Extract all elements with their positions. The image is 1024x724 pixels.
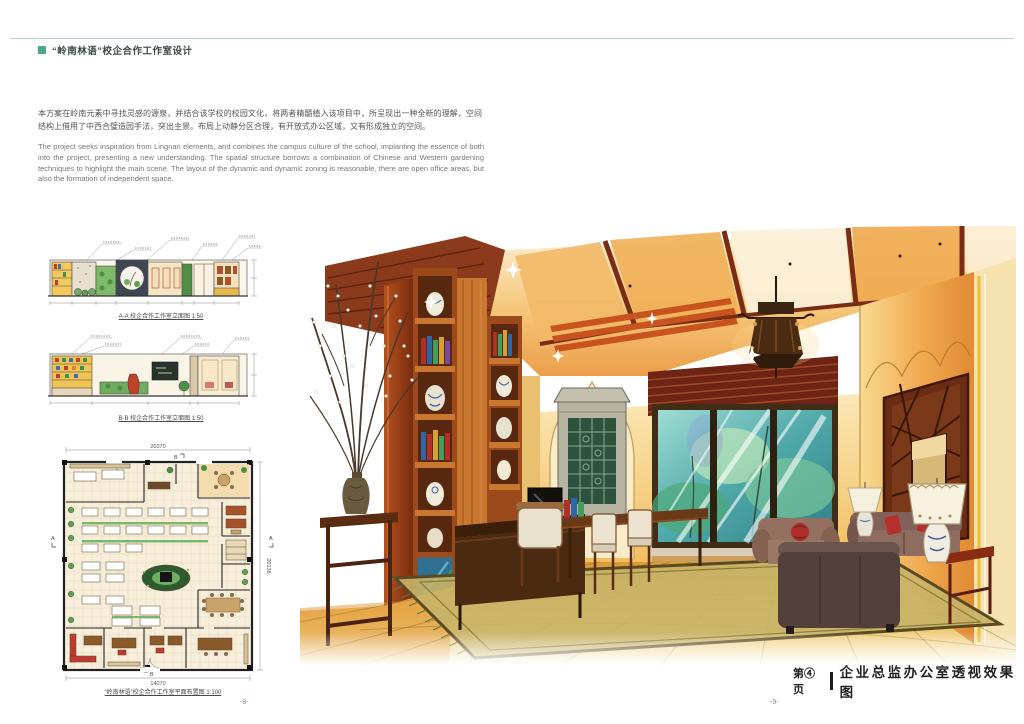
perspective-rendering — [300, 226, 1016, 666]
annotation-leaders — [72, 336, 250, 354]
floor-plan-figure: 20370 20138 14070 B B A A — [48, 440, 278, 696]
plan-dim-right: 20138 — [265, 558, 271, 573]
annotation-leaders — [87, 236, 262, 260]
rendering-page-label: 第④页 — [793, 665, 825, 697]
elevation-b-figure: B-B 校企合作工作室立面图 1:50 — [42, 330, 280, 422]
elevation-b-drawing — [42, 330, 280, 412]
plan-dim-bottom: 14070 — [150, 681, 165, 686]
plan-dim-top: 20370 — [150, 444, 165, 450]
rendering-title: 企业总监办公室透视效果图 — [840, 661, 1024, 701]
intro-paragraph-en: The project seeks inspiration from Lingn… — [38, 142, 484, 185]
back-sofa — [778, 542, 900, 634]
rendering-caption-divider — [830, 672, 833, 690]
elevation-b-body — [48, 354, 248, 396]
plan-marker-a-left: A — [51, 536, 55, 542]
display-shelf — [487, 316, 522, 556]
plan-marker-b-bottom: B — [150, 672, 154, 678]
elevation-a-body — [48, 260, 248, 296]
elevation-a-caption: A-A 校企合作工作室立面图 1:50 — [119, 311, 204, 320]
floor-plan-caption: “岭南林语”校企合作工作室平面布置图 1:100 — [105, 687, 222, 696]
plan-marker-b-top: B — [174, 455, 178, 461]
header-bullet-square — [38, 46, 46, 54]
page-number-left: -8- — [240, 699, 249, 706]
plan-marker-a-right: A — [269, 536, 273, 542]
top-rule-line — [10, 38, 1014, 39]
elevation-a-drawing — [42, 232, 280, 310]
rendering-caption: 第④页 企业总监办公室透视效果图 — [793, 661, 1024, 701]
floor-plan-drawing: 20370 20138 14070 B B A A — [48, 440, 278, 686]
elevation-b-caption: B-B 校企合作工作室立面图 1:50 — [118, 413, 203, 422]
header-row: “岭南林语”校企合作工作室设计 — [38, 43, 193, 57]
page-title: “岭南林语”校企合作工作室设计 — [52, 43, 193, 57]
bookshelf — [413, 268, 457, 608]
portfolio-sheet: “岭南林语”校企合作工作室设计 本方案在岭南元素中寻找灵感的源泉，并结合该学校的… — [0, 0, 1024, 724]
elevation-a-figure: A-A 校企合作工作室立面图 1:50 — [42, 232, 280, 320]
page-number-right: -9- — [770, 699, 779, 706]
intro-paragraph-zh: 本方案在岭南元素中寻找灵感的源泉，并结合该学校的校园文化，将两者精髓植入该项目中… — [38, 108, 482, 133]
